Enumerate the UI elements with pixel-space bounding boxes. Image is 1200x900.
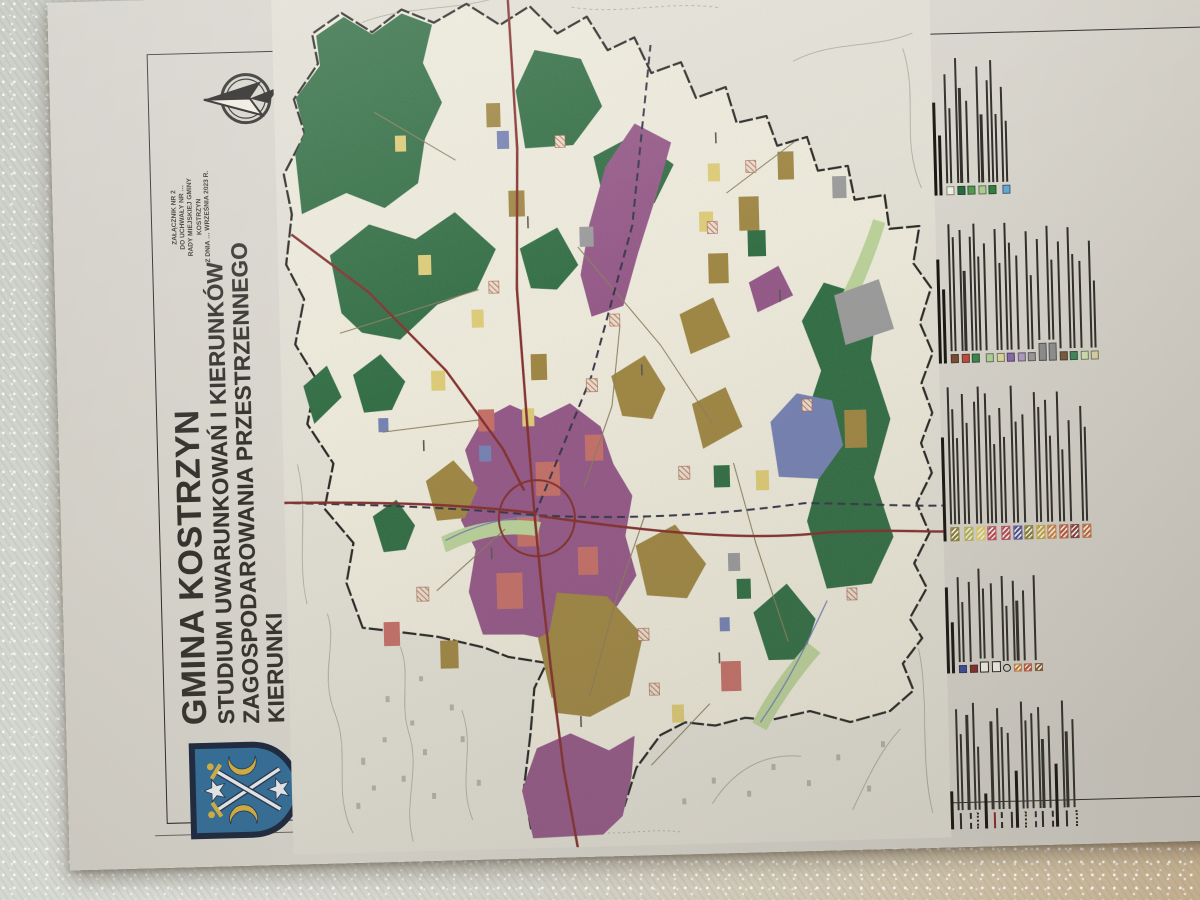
legend-group-boundaries-and-networks [947,676,1080,829]
legend-text-line [1055,764,1060,827]
legend-swatch [1013,664,1021,672]
legend-text-line [977,569,982,659]
legend-line-sample [960,813,962,829]
legend-line-sample [977,813,979,829]
legend-text-line [1088,241,1093,348]
legend-text-line [963,271,967,351]
legend-swatch [1002,185,1010,194]
legend-entry [1031,547,1042,671]
legend-text-line [1011,581,1015,661]
legend-text-line [960,734,964,810]
legend-text-line [1030,275,1034,349]
legend-swatch [996,353,1004,362]
legend-entry [998,34,1010,194]
legend-swatch [972,354,980,363]
paper-sheet: GMINA KOSTRZYN STUDIUM UWARUNKOWAŃ I KIE… [47,0,1200,870]
legend-entry [946,373,962,541]
legend-line-sample [1065,810,1067,826]
legend-text-line [977,747,981,810]
legend-swatch [959,665,967,673]
legend-text-line [966,715,971,810]
legend-swatch [967,186,975,195]
legend-text-line [1050,260,1054,340]
legend-text-line [1047,726,1051,808]
legend-text-line [967,582,971,662]
legend-text-line [1041,739,1045,808]
legend-text-line [1078,261,1082,348]
legend-entry [1070,676,1078,826]
legend-swatch [978,185,986,194]
legend-text-line [998,263,1002,350]
legend-text-line [996,708,1001,809]
legend-text-line [1049,436,1053,522]
legend-text-line [984,793,988,828]
legend-line-sample [1001,812,1003,828]
legend-swatch [1024,663,1032,671]
legend-text-line [1005,121,1009,182]
legend-text-line [965,101,969,183]
legend-line-sample [1052,811,1054,827]
legend-text-line [966,423,971,524]
legend-swatch [1003,664,1011,672]
legend-swatch [1070,351,1078,360]
legend-line-sample [994,812,996,828]
legend-swatch [1047,525,1056,539]
legend-swatch [1082,524,1091,538]
legend-text-line [1030,713,1035,808]
legend-text-line [982,588,986,658]
legend-group-excluded-from-development [930,34,1013,196]
legend-text-line [1056,241,1061,348]
legend-text-line [1060,700,1065,807]
legend-swatch [969,665,977,673]
legend-text-line [1061,449,1065,521]
legend-text-line [1065,731,1069,807]
legend-swatch [1059,351,1067,360]
legend-group-special-conditions [935,201,1102,363]
legend-swatch [1001,526,1010,540]
legend-text-line [977,256,982,350]
legend-text-line [990,721,994,809]
legend-entry [1021,547,1032,671]
legend-entry [956,549,967,673]
legend-swatch [1034,663,1042,671]
legend-text-line [1093,280,1097,347]
legend-text-line [961,602,965,662]
legend-swatch [1024,525,1033,539]
legend-text-line [1071,254,1076,348]
legend-text-line [988,415,993,523]
print-grain-overlay [271,0,951,855]
legend-line-sample [1011,812,1013,828]
legend-swatch [951,354,959,363]
legend-text-line [956,438,960,524]
legend-swatch [986,353,994,362]
legend-entry [968,204,984,362]
planning-map [271,0,951,855]
legend-entry [966,549,977,673]
legend-text-line [994,114,998,182]
legend-text-line [1016,601,1020,661]
legend-swatch [1013,525,1022,539]
legend-entry [1010,548,1021,672]
legend-text-line [1000,727,1004,809]
legend-text-line [950,791,954,829]
legend-swatch [1017,352,1025,361]
legend-swatch [961,354,969,363]
legend-line-sample [1075,810,1077,826]
legend-swatch [988,185,996,194]
legend-text-line [1015,255,1020,349]
legend-text-line [1003,437,1007,523]
legend-text-line [1083,427,1088,521]
legend-group-development-zones [939,370,1094,542]
legend-text-line [1022,590,1026,660]
legend-text-line [1014,771,1018,828]
legend-swatch [946,186,954,195]
legend-swatch [1049,342,1057,360]
legend-text-line [955,709,960,810]
legend-text-line [1000,87,1005,182]
legend-swatch [1038,343,1046,361]
legend-swatch [950,527,959,541]
legend-swatch [964,527,973,541]
legend-entry [984,34,1000,194]
legend-text-line [980,114,984,182]
legend-text-line [993,444,997,523]
legend-text-line [1005,606,1009,661]
legend-entry [983,372,999,540]
legend-swatch [980,661,989,672]
legend-entry [977,548,989,672]
legend-text-line [943,74,948,183]
legend-text-line [983,243,988,350]
legend-text-line [1020,702,1025,809]
legend-swatch [1028,352,1036,361]
legend-text-line [1032,575,1036,660]
legend-text-line [1001,576,1005,661]
legend-band [930,27,1141,832]
legend-line-sample [1041,811,1043,827]
legend-line-sample [1025,811,1027,827]
legend-entry [1087,201,1099,359]
legend-text-line [1024,720,1028,808]
legend-line-sample [970,813,972,829]
legend-swatch [1036,525,1045,539]
legend-swatch [1007,353,1015,362]
legend-text-line [1071,719,1075,807]
legend-text-line [1007,733,1011,809]
legend-text-line [1068,420,1073,521]
legend-swatch [976,526,985,540]
legend-text-line [958,88,963,183]
annotation-note: ZAŁĄCZNIK NR 2 DO UCHWAŁY NR … RADY MIEJ… [170,167,214,268]
legend-entry [1000,548,1011,672]
legend-text-line [957,577,961,662]
legend-line-sample [1035,811,1037,827]
legend-text-line [989,583,993,658]
legend-swatch [1080,351,1088,360]
legend-text-line [1022,414,1027,522]
legend-group-heritage-objects [944,547,1045,674]
legend-text-line [1035,239,1040,340]
legend-swatch [991,661,1000,672]
legend-swatch [957,186,965,195]
legend-entry [1078,370,1091,538]
legend-swatch [1070,524,1079,538]
legend-text-line [972,703,977,810]
sheet-content: GMINA KOSTRZYN STUDIUM UWARUNKOWAŃ I KIE… [73,0,1200,868]
legend-text-line [948,108,952,183]
legend-text-line [1008,243,1013,350]
legend-text-line [1014,422,1019,523]
legend-swatch [1091,350,1099,359]
legend-swatch [987,526,996,540]
legend-swatch [1059,524,1068,538]
legend-entry [988,548,1000,672]
legend-text-line [1037,707,1042,808]
